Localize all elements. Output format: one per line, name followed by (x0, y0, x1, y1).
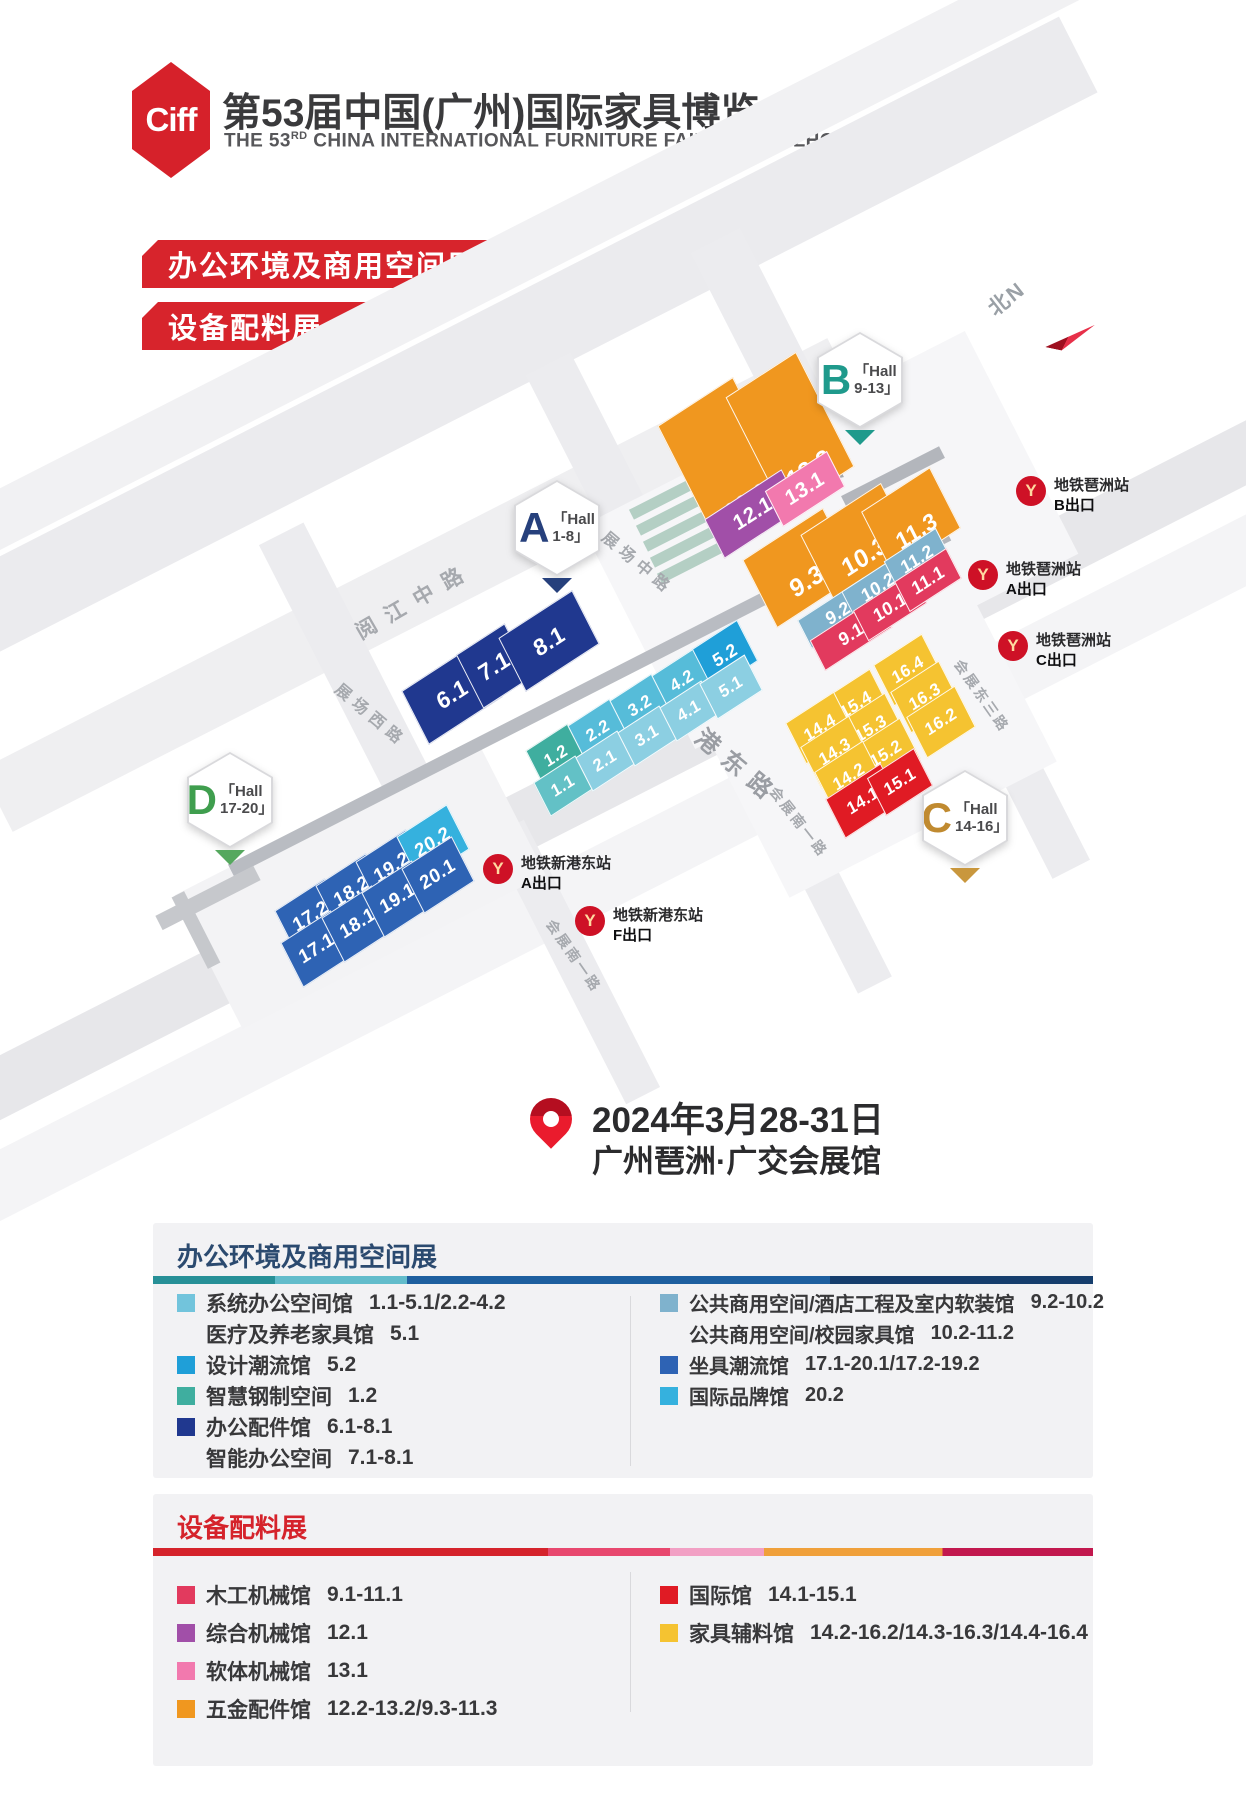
legend-equipment-bar (153, 1548, 1093, 1556)
legend-swatch (177, 1356, 195, 1374)
hall-badge-b-pointer (845, 430, 875, 445)
legend-row: 智能办公空间7.1-8.1 (177, 1443, 413, 1473)
metro-icon: Y (575, 906, 605, 936)
metro-marker-pazhou-a: Y地铁琶洲站A出口 (968, 560, 1081, 599)
legend-equipment-title: 设备配料展 (177, 1508, 307, 1545)
legend-row: 设计潮流馆5.2 (177, 1350, 356, 1380)
legend-row: 智慧钢制空间1.2 (177, 1381, 377, 1411)
legend-swatch (177, 1418, 195, 1436)
ciff-fair-map-poster: Ciff 第53届中国(广州)国际家具博览会 THE 53RD CHINA IN… (0, 0, 1246, 1799)
ciff-logo: Ciff (132, 62, 210, 178)
metro-icon: Y (998, 631, 1028, 661)
legend-row: 医疗及养老家具馆5.1 (177, 1319, 419, 1349)
legend-row: 公共商用空间/酒店工程及室内软装馆9.2-10.2 (660, 1288, 1104, 1317)
legend-row: 国际馆14.1-15.1 (660, 1580, 857, 1610)
event-venue: 广州琶洲·广交会展馆 (592, 1136, 881, 1181)
metro-icon: Y (1016, 476, 1046, 506)
legend-swatch (177, 1325, 195, 1343)
hall-badge-b: B「Hall9-13」 (817, 332, 903, 428)
legend-row: 家具辅料馆14.2-16.2/14.3-16.3/14.4-16.4 (660, 1618, 1088, 1648)
legend-swatch (660, 1325, 678, 1343)
metro-icon: Y (483, 854, 513, 884)
metro-marker-pazhou-c: Y地铁琶洲站C出口 (998, 631, 1111, 670)
legend-divider (630, 1572, 631, 1712)
location-pin-icon (521, 1089, 580, 1148)
legend-row: 综合机械馆12.1 (177, 1618, 368, 1648)
metro-marker-xingang-f: Y地铁新港东站F出口 (575, 906, 703, 945)
metro-icon: Y (968, 560, 998, 590)
north-arrow-icon (1045, 316, 1095, 356)
metro-marker-pazhou-b: Y地铁琶洲站B出口 (1016, 476, 1129, 515)
legend-swatch (177, 1586, 195, 1604)
metro-marker-xingang-a: Y地铁新港东站A出口 (483, 854, 611, 893)
legend-row: 公共商用空间/校园家具馆10.2-11.2 (660, 1319, 1014, 1348)
legend-swatch (177, 1624, 195, 1642)
legend-swatch (177, 1700, 195, 1718)
legend-row: 系统办公空间馆1.1-5.1/2.2-4.2 (177, 1288, 506, 1318)
hall-badge-a: A「Hall1-8」 (514, 480, 600, 576)
hall-badge-c: C「Hall14-16」 (922, 770, 1008, 866)
legend-swatch (177, 1662, 195, 1680)
legend-row: 木工机械馆9.1-11.1 (177, 1580, 403, 1610)
north-label: 北N (981, 274, 1031, 322)
hall-badge-d-pointer (215, 850, 245, 865)
legend-office-title: 办公环境及商用空间展 (177, 1237, 437, 1274)
legend-swatch (177, 1294, 195, 1312)
legend-swatch (660, 1294, 678, 1312)
legend-swatch (177, 1449, 195, 1467)
legend-swatch (177, 1387, 195, 1405)
hall-badge-d: D「Hall17-20」 (187, 752, 273, 848)
legend-swatch (660, 1624, 678, 1642)
hall-badge-c-pointer (950, 868, 980, 883)
legend-row: 办公配件馆6.1-8.1 (177, 1412, 392, 1442)
legend-row: 五金配件馆12.2-13.2/9.3-11.3 (177, 1694, 497, 1724)
legend-row: 坐具潮流馆17.1-20.1/17.2-19.2 (660, 1350, 980, 1379)
hall-badge-a-pointer (542, 578, 572, 593)
legend-row: 软体机械馆13.1 (177, 1656, 368, 1686)
legend-office-bar (153, 1276, 1093, 1284)
legend-row: 国际品牌馆20.2 (660, 1381, 844, 1410)
legend-swatch (660, 1387, 678, 1405)
legend-swatch (660, 1356, 678, 1374)
legend-swatch (660, 1586, 678, 1604)
legend-divider (630, 1296, 631, 1466)
